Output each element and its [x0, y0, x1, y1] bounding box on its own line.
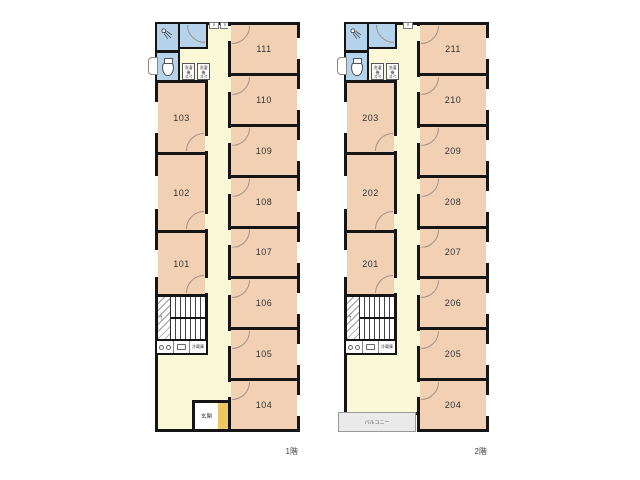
sink	[157, 341, 174, 353]
stair-flight	[171, 317, 205, 339]
room-number: 106	[256, 298, 273, 308]
room-number: 108	[256, 197, 273, 207]
door-gap	[417, 280, 420, 295]
door-gap	[228, 128, 231, 143]
kitchen-counter: 冷蔵庫	[155, 339, 208, 355]
up-arrow-icon: ↑	[348, 313, 352, 322]
room-number: 203	[362, 113, 379, 123]
room-211: 211	[420, 25, 486, 73]
window	[297, 140, 300, 161]
room-206: 206	[420, 276, 486, 327]
room-209: 209	[420, 124, 486, 175]
room-number: 210	[445, 95, 462, 105]
balcony: バルコニー	[338, 412, 416, 432]
door-gap	[228, 331, 231, 346]
window	[486, 191, 489, 212]
room-103: 103	[155, 80, 208, 155]
window	[297, 293, 300, 314]
stove-icon	[177, 344, 186, 350]
shower-icon	[159, 26, 175, 42]
kitchen-counter: 冷蔵庫	[344, 339, 397, 355]
room-number: 105	[256, 349, 273, 359]
corridor-wing-1f: 洗濯機 スペース 洗濯機 スペース ∨ ∨ 103	[155, 22, 231, 432]
room-110: 110	[231, 73, 297, 124]
door-gap	[205, 214, 208, 229]
water-heater	[148, 57, 158, 75]
door-gap	[394, 136, 397, 151]
window	[297, 191, 300, 212]
staircase: ↑	[155, 294, 208, 342]
door-gap	[394, 278, 397, 293]
floor-plan-1f: 洗濯機 スペース 洗濯機 スペース ∨ ∨ 103	[155, 22, 300, 432]
door-gap	[228, 280, 231, 295]
door-gap	[417, 179, 420, 194]
stair-flight	[360, 297, 394, 317]
shower-room	[344, 22, 369, 52]
room-204: 204	[420, 378, 486, 429]
room-number: 101	[173, 259, 190, 269]
refrigerator-space: 冷蔵庫	[379, 341, 395, 353]
stove	[363, 341, 379, 353]
sink-bowl-icon	[355, 345, 360, 350]
room-number: 102	[173, 188, 190, 198]
sink-bowl-icon	[166, 345, 171, 350]
room-106: 106	[231, 276, 297, 327]
toilet-icon	[351, 61, 363, 76]
washing-machine-space: 洗濯機 スペース	[386, 63, 399, 80]
door-gap	[417, 26, 420, 41]
room-108: 108	[231, 175, 297, 226]
door-gap	[417, 331, 420, 346]
room-number: 202	[362, 188, 379, 198]
floor-label-1f: 1階	[286, 446, 298, 457]
room-109: 109	[231, 124, 297, 175]
room-number: 104	[256, 400, 273, 410]
window	[344, 250, 347, 277]
window	[155, 250, 158, 277]
window	[486, 89, 489, 110]
sink-bowl-icon	[348, 345, 353, 350]
door-gap	[228, 230, 231, 245]
washing-machine-space: 洗濯機 スペース	[197, 63, 210, 80]
floor-label-2f: 2階	[475, 446, 487, 457]
stair-flights	[360, 297, 394, 339]
room-number: 103	[173, 113, 190, 123]
stair-flights	[171, 297, 205, 339]
stair-flight	[360, 317, 394, 339]
window	[297, 38, 300, 59]
room-number: 211	[445, 44, 461, 54]
room-column-1f: 111 110 109 108	[228, 22, 300, 432]
sink	[346, 341, 363, 353]
room-208: 208	[420, 175, 486, 226]
floorplan-canvas: 洗濯機 スペース 洗濯機 スペース ∨ ∨ 103	[0, 0, 640, 480]
washing-machine-space: 洗濯機 スペース	[182, 63, 195, 80]
door-gap	[417, 77, 420, 92]
vent-icon: ∨	[209, 22, 219, 29]
door-gap	[228, 382, 231, 397]
room-111: 111	[231, 25, 297, 73]
door-gap	[417, 382, 420, 397]
window	[486, 395, 489, 416]
window	[297, 89, 300, 110]
window	[486, 344, 489, 365]
room-number: 205	[445, 349, 462, 359]
room-number: 209	[445, 146, 462, 156]
room-number: 111	[256, 44, 271, 54]
room-number: 206	[445, 298, 462, 308]
refrigerator-space: 冷蔵庫	[190, 341, 206, 353]
window	[155, 102, 158, 132]
washer-area: 洗濯機 スペース 洗濯機 スペース	[182, 63, 210, 80]
door-gap	[205, 136, 208, 151]
floor-plan-2f: 洗濯機 スペース 洗濯機 スペース ∨ 203 202	[344, 22, 489, 432]
vent-icon: ∨	[403, 22, 413, 29]
window	[486, 38, 489, 59]
room-number: 107	[256, 247, 273, 257]
room-number: 204	[445, 400, 462, 410]
window	[155, 176, 158, 209]
staircase: ↑	[344, 294, 397, 342]
water-heater	[337, 57, 347, 75]
toilet-icon	[162, 61, 174, 76]
room-107: 107	[231, 226, 297, 277]
room-number: 207	[445, 247, 462, 257]
window	[344, 102, 347, 132]
washroom	[367, 22, 397, 49]
corridor-wing-2f: 洗濯機 スペース 洗濯機 スペース ∨ 203 202	[344, 22, 420, 415]
sink-bowl-icon	[159, 345, 164, 350]
room-number: 208	[445, 197, 462, 207]
window	[486, 293, 489, 314]
room-202: 202	[344, 152, 397, 233]
room-210: 210	[420, 73, 486, 124]
entrance: 玄関	[192, 400, 221, 432]
room-105: 105	[231, 327, 297, 378]
up-arrow-icon: ↑	[159, 313, 163, 322]
room-102: 102	[155, 152, 208, 233]
window	[297, 242, 300, 263]
door-gap	[394, 214, 397, 229]
door-gap	[228, 179, 231, 194]
door-gap	[205, 278, 208, 293]
room-201: 201	[344, 230, 397, 297]
room-number: 110	[256, 95, 272, 105]
door-gap	[228, 26, 231, 41]
room-column-2f: 211 210 209 208	[417, 22, 489, 432]
washing-machine-space: 洗濯機 スペース	[371, 63, 384, 80]
door-gap	[417, 128, 420, 143]
room-number: 201	[362, 259, 379, 269]
stove-icon	[366, 344, 375, 350]
room-203: 203	[344, 80, 397, 155]
room-205: 205	[420, 327, 486, 378]
room-207: 207	[420, 226, 486, 277]
window	[486, 242, 489, 263]
window	[486, 140, 489, 161]
stove	[174, 341, 190, 353]
room-number: 109	[256, 146, 273, 156]
window	[344, 176, 347, 209]
shower-icon	[348, 26, 364, 42]
stair-flight	[171, 297, 205, 317]
window	[297, 344, 300, 365]
door-gap	[417, 230, 420, 245]
room-101: 101	[155, 230, 208, 297]
washroom	[178, 22, 208, 49]
room-104: 104	[231, 378, 297, 429]
washer-area: 洗濯機 スペース 洗濯機 スペース	[371, 63, 399, 80]
window	[297, 395, 300, 416]
door-gap	[228, 77, 231, 92]
shower-room	[155, 22, 180, 52]
